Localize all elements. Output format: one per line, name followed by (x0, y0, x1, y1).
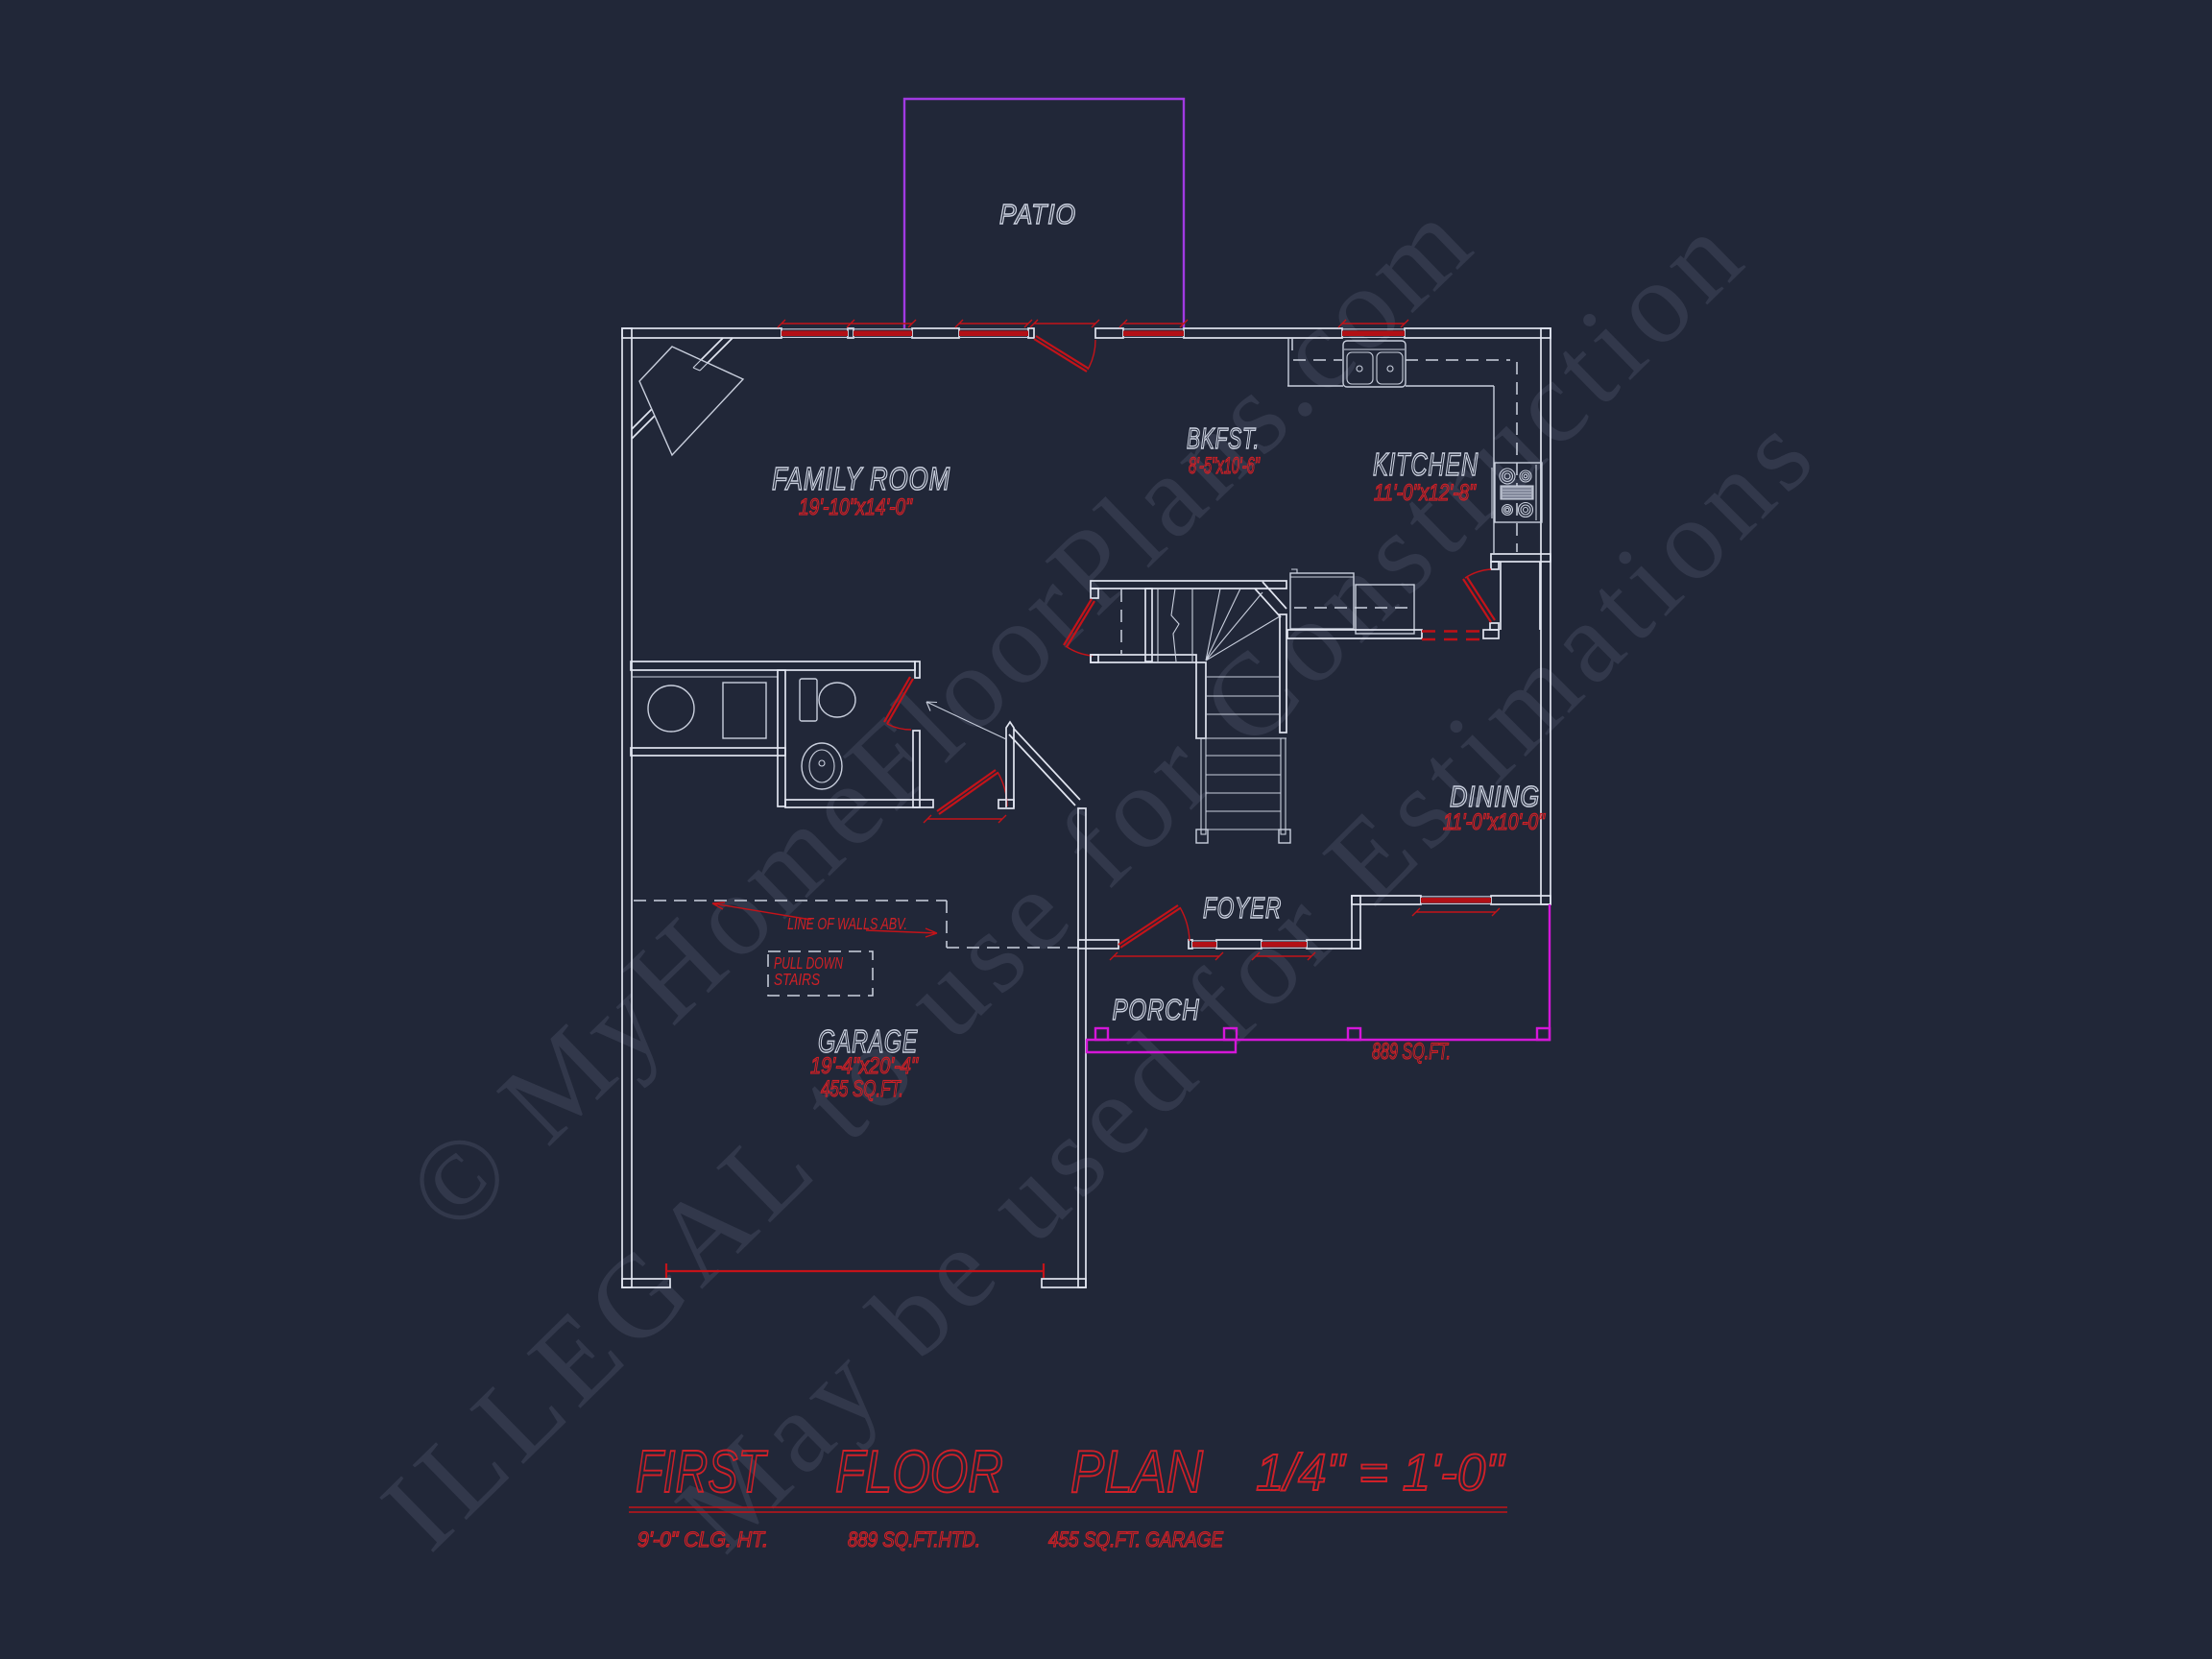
svg-text:1/4" = 1'-0": 1/4" = 1'-0" (1256, 1444, 1506, 1502)
svg-text:455 SQ.FT. GARAGE: 455 SQ.FT. GARAGE (1048, 1527, 1223, 1551)
svg-text:FOYER: FOYER (1203, 891, 1282, 925)
svg-text:11'-0"x10'-0": 11'-0"x10'-0" (1443, 809, 1546, 835)
svg-text:PLAN: PLAN (1070, 1439, 1203, 1505)
svg-text:STAIRS: STAIRS (774, 970, 820, 989)
svg-text:© MyHomeFloorPlans.com: © MyHomeFloorPlans.com (382, 177, 1494, 1257)
svg-text:889 SQ.FT.HTD.: 889 SQ.FT.HTD. (848, 1527, 980, 1551)
svg-text:LINE OF WALLS ABV.: LINE OF WALLS ABV. (787, 914, 907, 933)
svg-text:DINING: DINING (1450, 780, 1540, 813)
svg-text:19'-10"x14'-0": 19'-10"x14'-0" (799, 494, 913, 520)
svg-text:19'-4"x20'-4": 19'-4"x20'-4" (810, 1053, 919, 1079)
svg-text:PORCH: PORCH (1113, 993, 1200, 1026)
svg-text:May be used for Estimations: May be used for Estimations (652, 392, 1835, 1575)
svg-text:9'-0" CLG. HT.: 9'-0" CLG. HT. (637, 1527, 768, 1551)
svg-text:FAMILY ROOM: FAMILY ROOM (772, 461, 950, 496)
svg-text:8'-5"x10'-6": 8'-5"x10'-6" (1189, 453, 1261, 479)
svg-text:FIRST: FIRST (636, 1439, 768, 1505)
svg-text:11'-0"x12'-8": 11'-0"x12'-8" (1374, 480, 1477, 506)
svg-text:889 SQ.FT.: 889 SQ.FT. (1372, 1039, 1451, 1065)
svg-text:FLOOR: FLOOR (835, 1439, 1003, 1505)
svg-text:455 SQ.FT.: 455 SQ.FT. (821, 1076, 903, 1102)
svg-text:BKFST.: BKFST. (1187, 421, 1260, 455)
svg-text:KITCHEN: KITCHEN (1373, 446, 1479, 482)
svg-text:PATIO: PATIO (999, 200, 1076, 230)
svg-text:ILLEGAL to use for Constructio: ILLEGAL to use for Construction (357, 191, 1765, 1574)
